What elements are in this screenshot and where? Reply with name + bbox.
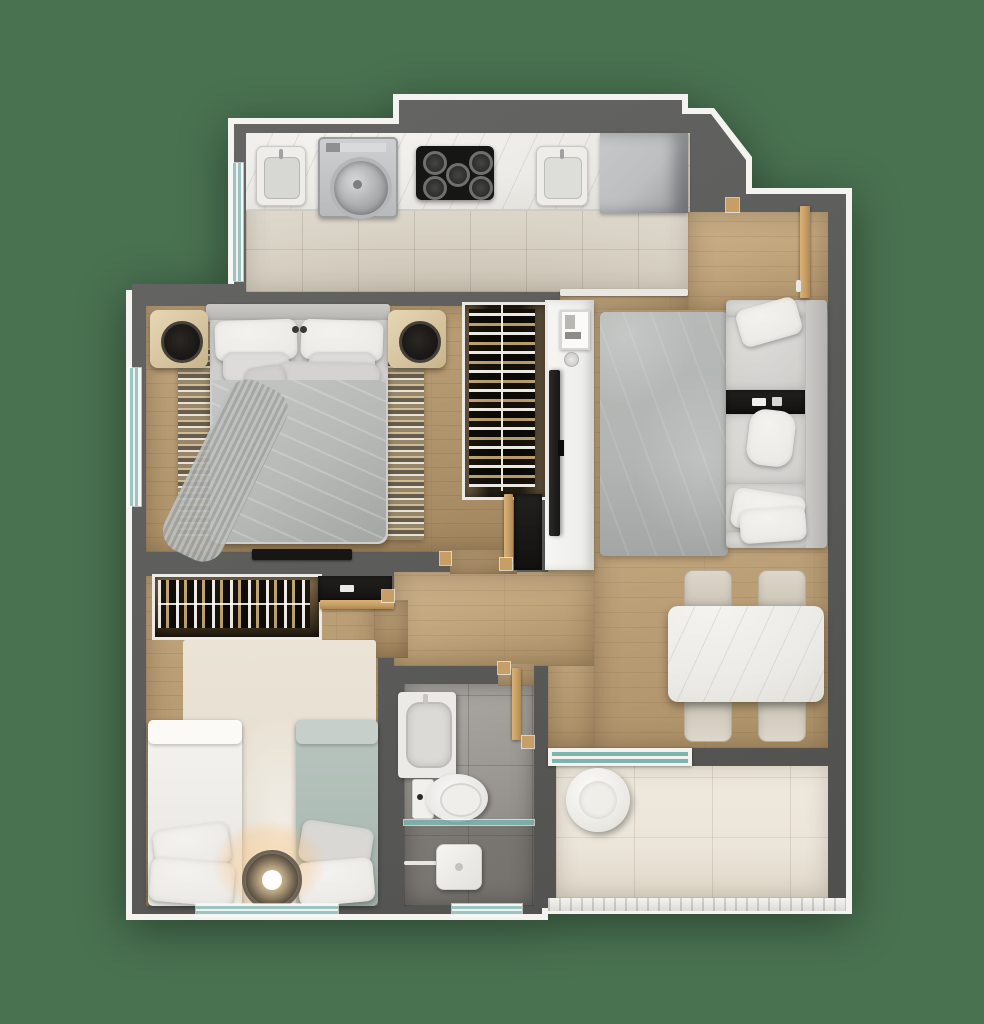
kitchen-sink-basin	[544, 157, 582, 199]
plant-icon	[161, 321, 203, 363]
floor-lamp	[242, 850, 302, 910]
entry-door-jamb	[726, 198, 739, 212]
burner-icon	[469, 151, 493, 175]
hall-door-jamb	[440, 552, 451, 565]
burner-icon	[423, 151, 447, 175]
washer-control-panel	[326, 143, 386, 152]
burner-icon	[446, 163, 470, 187]
shower-arm	[404, 861, 438, 865]
nightstand	[388, 310, 446, 368]
entry-door	[800, 206, 810, 298]
washing-machine	[318, 137, 398, 218]
bathroom-window	[452, 904, 522, 916]
laundry-sink	[256, 146, 306, 206]
balcony-pouf	[566, 768, 630, 832]
burner-icon	[423, 176, 447, 200]
sofa	[726, 300, 827, 548]
console-item	[772, 397, 782, 406]
washer-drum	[330, 157, 392, 219]
laundry-faucet	[279, 149, 283, 159]
entry-door-handle-icon	[796, 280, 801, 292]
sofa-backrest	[806, 300, 827, 548]
dining-chair	[758, 696, 806, 742]
toilet	[412, 774, 490, 822]
kitchen-threshold-sill	[560, 289, 688, 296]
kids-shelf	[318, 576, 392, 602]
bathroom-vanity	[398, 692, 456, 778]
burner-icon	[469, 176, 493, 200]
sliding-door-glass	[552, 752, 688, 756]
vanity-faucet	[423, 694, 428, 704]
rain-shower-head	[436, 844, 482, 890]
shower-glass-partition	[404, 820, 534, 825]
living-area-rug	[600, 312, 728, 556]
sofa-pillow	[739, 506, 807, 545]
master-bed	[210, 320, 388, 544]
console-item	[752, 398, 766, 406]
balcony-sliding-door	[548, 748, 692, 766]
wardrobe-side-return	[514, 494, 542, 570]
wardrobe-divider	[501, 305, 503, 491]
dining-table	[668, 606, 824, 702]
hallway-floor	[394, 572, 594, 666]
laundry-sink-basin	[264, 157, 300, 199]
master-door-jamb	[500, 558, 512, 570]
plant-icon	[399, 321, 441, 363]
nightstand	[150, 310, 208, 368]
master-wardrobe	[462, 302, 548, 500]
bathroom-door-jamb	[498, 662, 510, 674]
lamp-light	[262, 870, 282, 890]
flush-button-icon	[417, 794, 423, 800]
decor-bowl	[564, 352, 579, 367]
dining-chair	[684, 696, 732, 742]
bathroom-door	[512, 668, 521, 740]
toilet-seat	[440, 783, 482, 817]
shelf-item	[340, 585, 354, 592]
decor-frame-art	[565, 332, 581, 339]
second-bedroom-door-jamb	[382, 590, 394, 602]
master-tv	[252, 549, 352, 560]
refrigerator-cabinet	[600, 133, 688, 213]
cooktop	[416, 146, 494, 200]
pouf-cushion	[579, 781, 617, 819]
closet-rod	[158, 603, 310, 605]
decor-frame-art	[565, 315, 575, 329]
kitchen-faucet	[560, 149, 564, 159]
sofa-pillow	[745, 407, 797, 468]
kitchen-sink	[536, 146, 588, 206]
shower-head-center	[455, 863, 463, 871]
bed-folded-blanket	[148, 720, 242, 744]
bathroom-door-jamb	[522, 736, 534, 748]
decor-frame	[560, 310, 590, 350]
second-bedroom-window	[196, 904, 338, 916]
reading-light-icon	[292, 326, 299, 333]
master-window	[128, 368, 141, 506]
sliding-door-glass	[552, 759, 688, 763]
vanity-basin	[406, 702, 452, 768]
reading-light-icon	[300, 326, 307, 333]
tv-panel	[545, 300, 594, 570]
balcony-railing	[548, 898, 846, 911]
master-rug-border	[386, 348, 424, 540]
floor-plan-render	[0, 0, 984, 1024]
living-tv-mount	[558, 440, 564, 456]
washer-drum-hub	[353, 180, 362, 189]
kids-closet	[152, 574, 322, 640]
bed-folded-blanket	[296, 720, 378, 744]
master-door	[504, 494, 513, 562]
kitchen-window	[231, 163, 243, 281]
